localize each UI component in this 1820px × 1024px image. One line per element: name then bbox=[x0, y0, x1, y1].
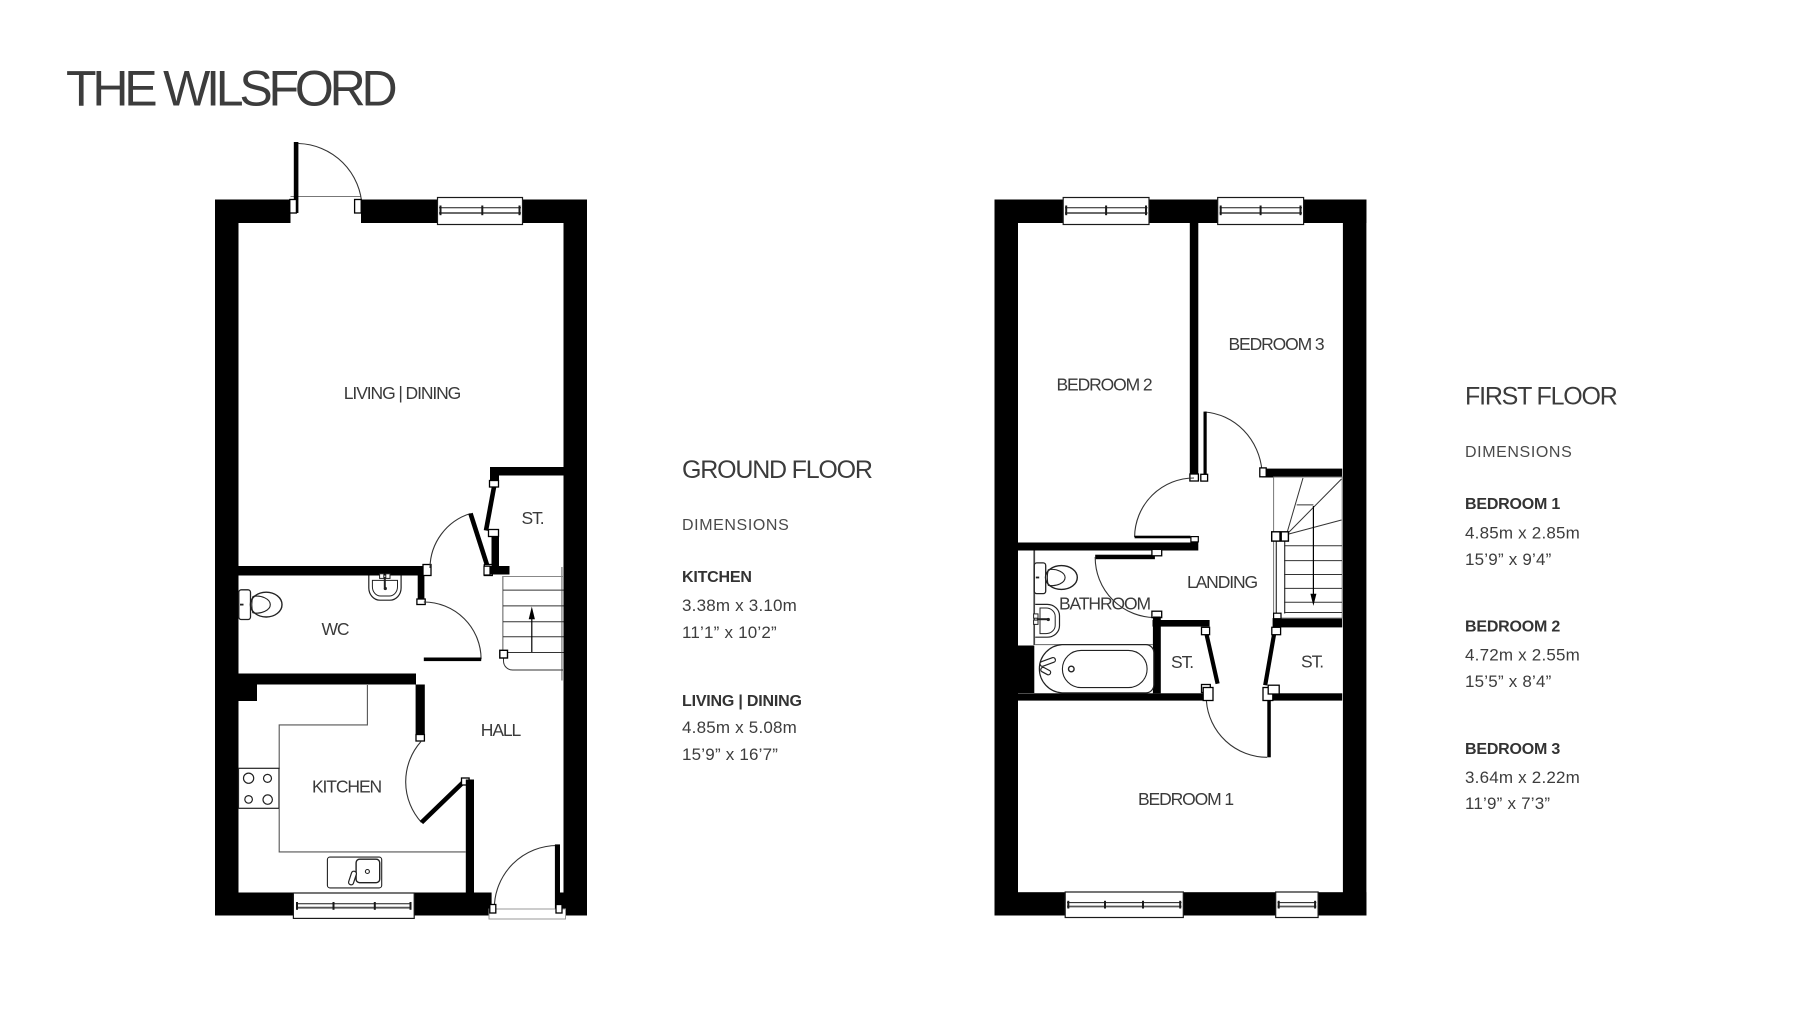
svg-text:GROUND FLOOR: GROUND FLOOR bbox=[682, 456, 872, 484]
svg-text:15’5” x 8’4”: 15’5” x 8’4” bbox=[1465, 672, 1552, 691]
svg-text:4.85m x 2.85m: 4.85m x 2.85m bbox=[1465, 524, 1580, 543]
svg-text:ST.: ST. bbox=[522, 508, 544, 528]
svg-text:BEDROOM 2: BEDROOM 2 bbox=[1465, 619, 1560, 636]
svg-text:11’1” x 10’2”: 11’1” x 10’2” bbox=[682, 623, 777, 642]
svg-text:3.64m x 2.22m: 3.64m x 2.22m bbox=[1465, 768, 1580, 787]
svg-text:4.85m x 5.08m: 4.85m x 5.08m bbox=[682, 718, 797, 737]
svg-text:LIVING | DINING: LIVING | DINING bbox=[344, 383, 461, 403]
svg-text:FIRST FLOOR: FIRST FLOOR bbox=[1465, 383, 1617, 411]
svg-text:3.38m x 3.10m: 3.38m x 3.10m bbox=[682, 596, 797, 615]
svg-text:BEDROOM 3: BEDROOM 3 bbox=[1228, 334, 1323, 354]
svg-text:BEDROOM 2: BEDROOM 2 bbox=[1056, 375, 1151, 395]
svg-text:15’9” x 9’4”: 15’9” x 9’4” bbox=[1465, 550, 1552, 569]
svg-text:THE WILSFORD: THE WILSFORD bbox=[66, 61, 395, 117]
svg-text:LANDING: LANDING bbox=[1187, 572, 1258, 592]
svg-text:BEDROOM 1: BEDROOM 1 bbox=[1465, 496, 1560, 513]
svg-text:HALL: HALL bbox=[481, 720, 522, 740]
svg-text:WC: WC bbox=[322, 619, 349, 639]
svg-text:4.72m x 2.55m: 4.72m x 2.55m bbox=[1465, 646, 1580, 665]
svg-text:ST.: ST. bbox=[1171, 652, 1193, 672]
svg-text:DIMENSIONS: DIMENSIONS bbox=[682, 517, 789, 534]
svg-text:BATHROOM: BATHROOM bbox=[1059, 593, 1151, 613]
svg-text:LIVING | DINING: LIVING | DINING bbox=[682, 693, 802, 710]
svg-text:ST.: ST. bbox=[1301, 652, 1323, 672]
svg-text:KITCHEN: KITCHEN bbox=[312, 777, 382, 797]
svg-text:BEDROOM 3: BEDROOM 3 bbox=[1465, 741, 1560, 758]
svg-text:DIMENSIONS: DIMENSIONS bbox=[1465, 444, 1572, 461]
svg-text:11’9” x 7’3”: 11’9” x 7’3” bbox=[1465, 794, 1550, 813]
svg-text:KITCHEN: KITCHEN bbox=[682, 569, 752, 586]
svg-text:BEDROOM 1: BEDROOM 1 bbox=[1138, 789, 1233, 809]
svg-text:15’9” x 16’7”: 15’9” x 16’7” bbox=[682, 745, 778, 764]
